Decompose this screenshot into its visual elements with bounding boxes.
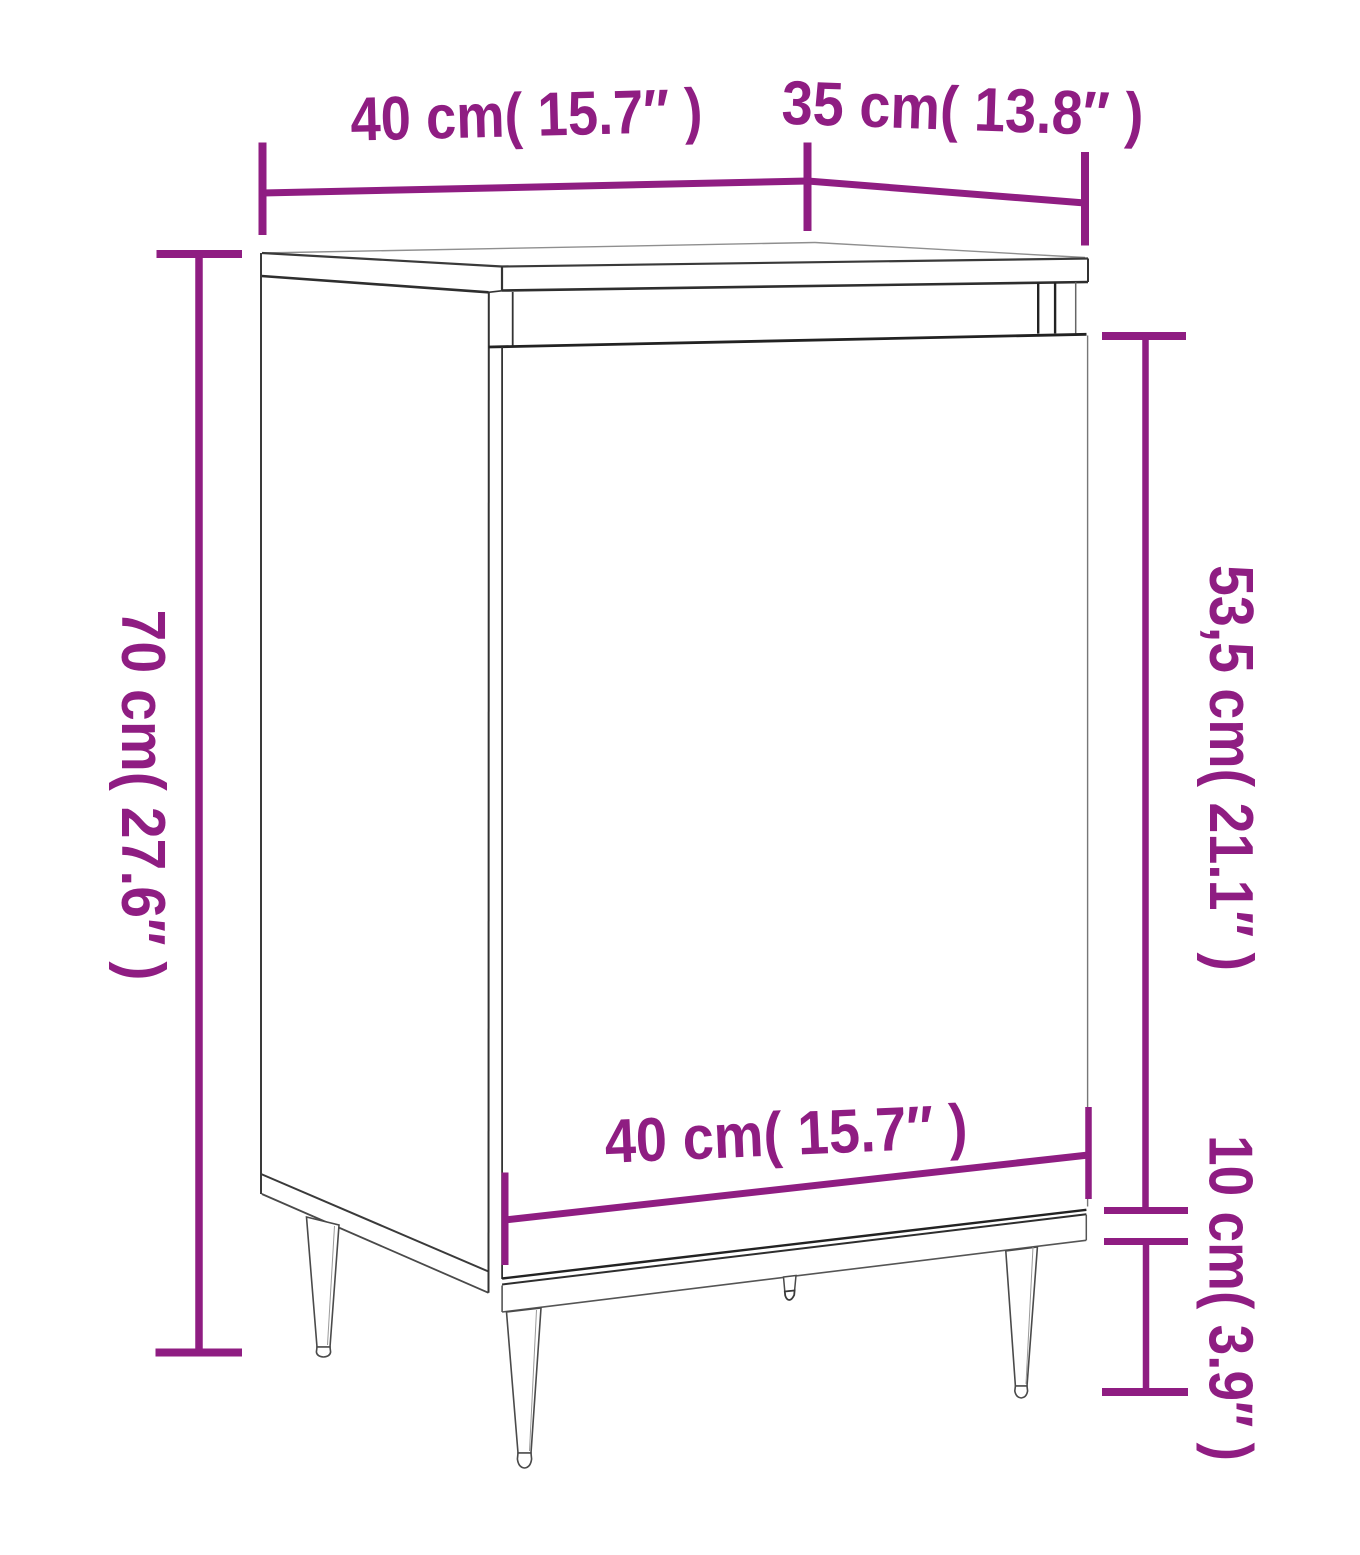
svg-text:35 cm( 13.8″ ): 35 cm( 13.8″ ) — [781, 69, 1145, 151]
svg-text:53,5 cm( 21.1″ ): 53,5 cm( 21.1″ ) — [1196, 565, 1265, 971]
svg-text:10 cm( 3.9″ ): 10 cm( 3.9″ ) — [1196, 1135, 1265, 1461]
svg-text:70 cm( 27.6″ ): 70 cm( 27.6″ ) — [108, 610, 177, 981]
svg-text:40 cm( 15.7″ ): 40 cm( 15.7″ ) — [350, 76, 704, 154]
